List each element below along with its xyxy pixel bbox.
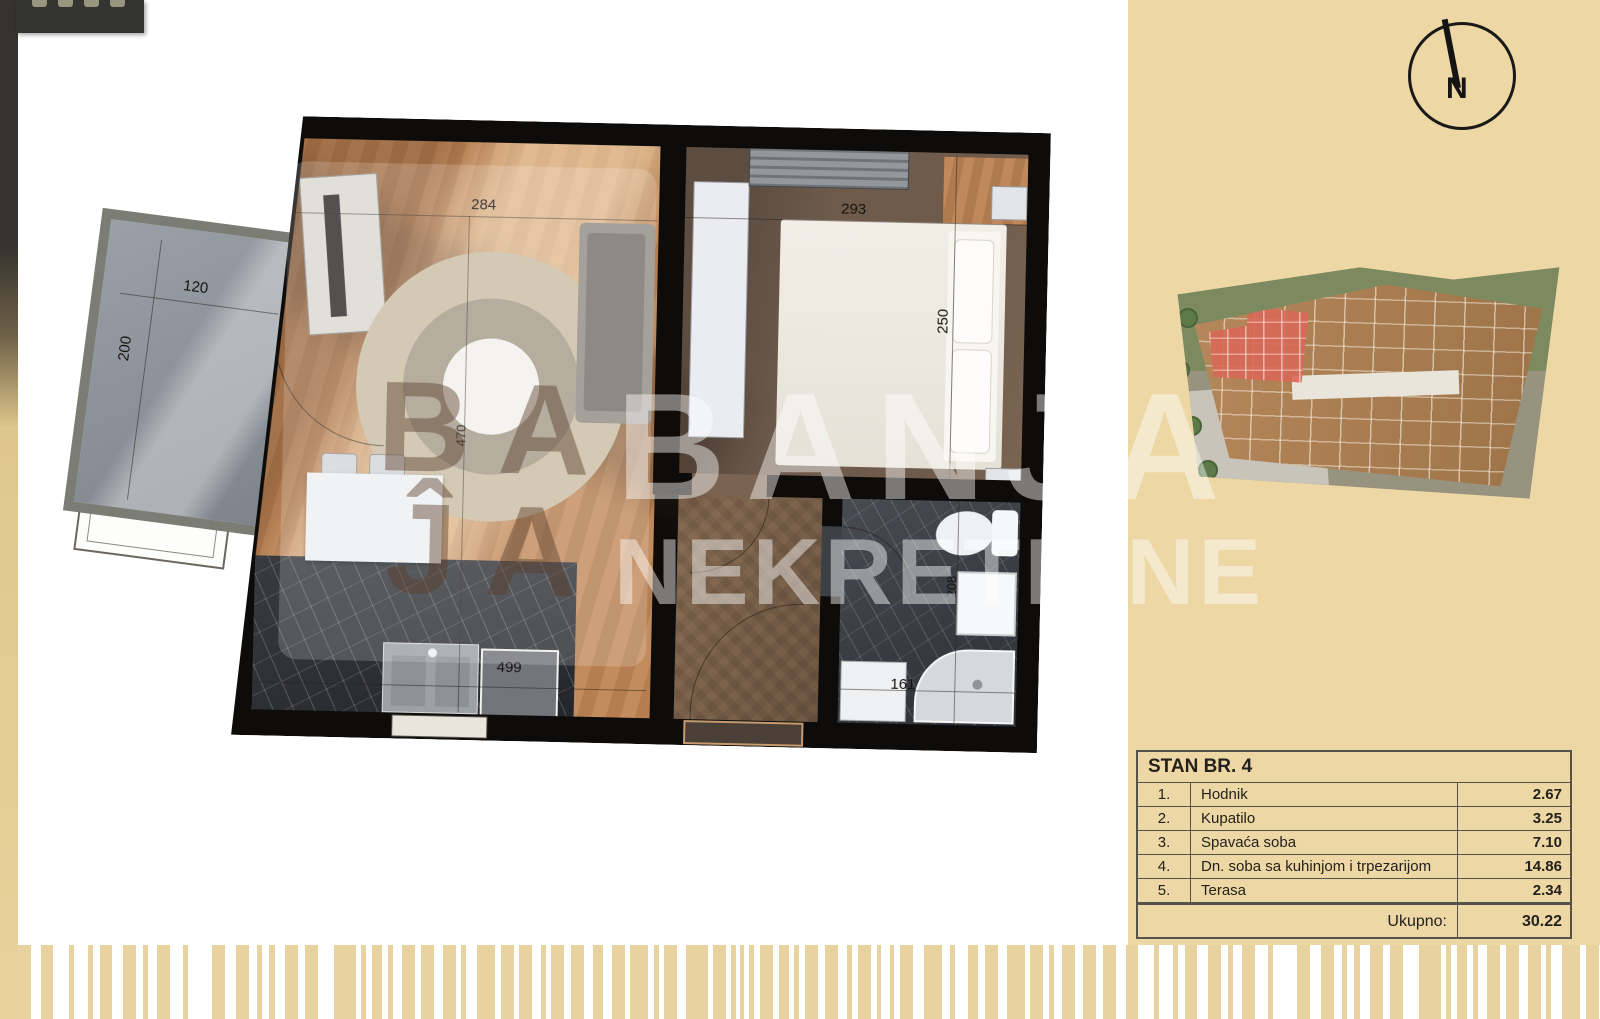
- bedroom-door-opening: [692, 473, 767, 497]
- sofa: [575, 223, 656, 425]
- barcode-bar: [1049, 945, 1054, 1019]
- tree-icon: [1198, 460, 1218, 480]
- barcode-bar: [269, 945, 275, 1019]
- kitchen-sink-unit: [382, 642, 480, 714]
- room-area: 2.67: [1457, 783, 1570, 806]
- total-label: Ukupno:: [1138, 905, 1457, 937]
- total-value: 30.22: [1457, 905, 1570, 937]
- tv-console: [299, 173, 387, 336]
- barcode-bar: [443, 945, 456, 1019]
- barcode-bar: [1185, 945, 1197, 1019]
- barcode-bar: [686, 945, 708, 1019]
- room-area: 7.10: [1457, 831, 1570, 854]
- row-number: 3.: [1138, 831, 1191, 854]
- barcode-bar: [760, 945, 773, 1019]
- entrance-door: [683, 720, 804, 747]
- building-corridor: [1292, 370, 1460, 400]
- barcode-bar: [361, 945, 366, 1019]
- barcode-bar: [305, 945, 318, 1019]
- barcode-bar: [1354, 945, 1360, 1019]
- dim-bath-width: 161: [890, 676, 915, 694]
- compass-north-label: N: [1446, 72, 1468, 106]
- barcode-bar: [877, 945, 881, 1019]
- barcode-bar: [1062, 945, 1075, 1019]
- barcode-bar: [825, 945, 838, 1019]
- barcode-bar: [477, 945, 495, 1019]
- barcode-bar: [1007, 945, 1025, 1019]
- barcode-bar: [69, 945, 74, 1019]
- room-area: 3.25: [1457, 807, 1570, 830]
- cabinet-door: [391, 655, 426, 706]
- tree-icon: [1170, 360, 1190, 380]
- pillow: [950, 349, 992, 454]
- barcode-bar: [900, 945, 913, 1019]
- barcode-bar: [805, 945, 818, 1019]
- edge-accent-strip: [0, 0, 18, 1019]
- tree-icon: [1182, 416, 1202, 436]
- barcode-bar: [334, 945, 356, 1019]
- cropped-letter: [110, 0, 125, 7]
- barcode-bar: [1419, 945, 1441, 1019]
- barcode-bar: [100, 945, 112, 1019]
- table-row: 4. Dn. soba sa kuhinjom i trpezarijom 14…: [1138, 855, 1570, 879]
- total-row: Ukupno: 30.22: [1136, 903, 1572, 939]
- dim-living-height: 470: [453, 424, 468, 446]
- barcode-bar: [924, 945, 942, 1019]
- dim-living-width: 284: [471, 196, 496, 214]
- barcode-bar: [88, 945, 93, 1019]
- barcode-bar: [1242, 945, 1255, 1019]
- cropped-letter: [32, 0, 47, 7]
- barcode-bar: [749, 945, 754, 1019]
- cropped-letter: [84, 0, 99, 7]
- barcode-bar: [551, 945, 564, 1019]
- barcode-bar: [1457, 945, 1467, 1019]
- cropped-logo-banner: [16, 0, 144, 33]
- barcode-bar: [1370, 945, 1383, 1019]
- barcode-bar: [1083, 945, 1096, 1019]
- table-row: 5. Terasa 2.34: [1138, 879, 1570, 902]
- barcode-bar: [402, 945, 415, 1019]
- dim-bath-height: 208: [944, 576, 959, 598]
- barcode-bar: [1446, 945, 1451, 1019]
- barcode-bar: [1562, 945, 1580, 1019]
- barcode-bar: [731, 945, 736, 1019]
- building-footprint: [1195, 285, 1543, 487]
- table-row: 3. Spavaća soba 7.10: [1138, 831, 1570, 855]
- barcode-bar: [1528, 945, 1541, 1019]
- barcode-bar: [612, 945, 625, 1019]
- barcode-bar: [1390, 945, 1403, 1019]
- barcode-bar: [1268, 945, 1273, 1019]
- barcode-bar: [571, 945, 584, 1019]
- barcode-bar: [1546, 945, 1551, 1019]
- window: [391, 714, 487, 738]
- barcode-bar: [1487, 945, 1500, 1019]
- barcode-bar: [1297, 945, 1310, 1019]
- barcode-bar: [1321, 945, 1334, 1019]
- barcode-bar: [858, 945, 871, 1019]
- barcode-bar: [664, 945, 677, 1019]
- building-locator-plan: [1148, 260, 1572, 506]
- barcode-bar: [1586, 945, 1599, 1019]
- dim-bedroom-width: 293: [841, 200, 866, 218]
- toilet-tank: [991, 510, 1018, 557]
- cabinet-door: [435, 656, 470, 707]
- barcode-bar: [1208, 945, 1221, 1019]
- floor-plan: 284 293 250 470 499 161 208 BA ĴA: [231, 115, 1051, 753]
- barcode-bar: [890, 945, 894, 1019]
- barcode-bar: [985, 945, 998, 1019]
- barcode-bar: [183, 945, 188, 1019]
- shower-drain-icon: [972, 680, 982, 690]
- decorative-barcode: [18, 945, 1600, 1019]
- barcode-bar: [630, 945, 648, 1019]
- barcode-bar: [212, 945, 225, 1019]
- room-name: Kupatilo: [1191, 807, 1457, 830]
- barcode-bar: [501, 945, 514, 1019]
- barcode-bar: [519, 945, 532, 1019]
- row-number: 5.: [1138, 879, 1191, 902]
- barcode-bar: [950, 945, 955, 1019]
- barcode-bar: [541, 945, 546, 1019]
- room-name: Dn. soba sa kuhinjom i trpezarijom: [1191, 855, 1457, 878]
- dim-kitchen-width: 499: [496, 659, 521, 677]
- room-name: Spavaća soba: [1191, 831, 1457, 854]
- wardrobe: [688, 181, 750, 438]
- room-area: 2.34: [1457, 879, 1570, 902]
- table-row: 1. Hodnik 2.67: [1138, 783, 1570, 807]
- barcode-bar: [372, 945, 382, 1019]
- row-number: 2.: [1138, 807, 1191, 830]
- dim-bedroom-height: 250: [934, 309, 952, 334]
- dimension-line: [127, 240, 162, 500]
- barcode-bar: [123, 945, 136, 1019]
- area-table: STAN BR. 4 1. Hodnik 2.67 2. Kupatilo 3.…: [1136, 750, 1572, 904]
- barcode-bar: [1506, 945, 1519, 1019]
- barcode-bar: [1030, 945, 1043, 1019]
- room-name: Terasa: [1191, 879, 1457, 902]
- barcode-bar: [654, 945, 659, 1019]
- side-panel: N STAN BR. 4 1. Hodnik 2.67 2. Kupatilo …: [1128, 0, 1600, 947]
- row-number: 1.: [1138, 783, 1191, 806]
- double-bed: [775, 219, 1007, 470]
- barcode-bar: [713, 945, 726, 1019]
- barcode-bar: [1126, 945, 1138, 1019]
- barcode-bar: [257, 945, 262, 1019]
- barcode-bar: [143, 945, 148, 1019]
- table-row: 2. Kupatilo 3.25: [1138, 807, 1570, 831]
- barcode-bar: [388, 945, 393, 1019]
- barcode-bar: [847, 945, 852, 1019]
- barcode-bar: [779, 945, 789, 1019]
- barcode-bar: [285, 945, 298, 1019]
- sofa-cushion: [584, 233, 646, 412]
- barcode-bar: [18, 945, 31, 1019]
- barcode-bar: [1103, 945, 1116, 1019]
- barcode-bar: [1473, 945, 1478, 1019]
- barcode-bar: [794, 945, 799, 1019]
- row-number: 4.: [1138, 855, 1191, 878]
- pillow: [952, 239, 994, 344]
- barcode-bar: [593, 945, 603, 1019]
- barcode-bar: [1173, 945, 1178, 1019]
- barcode-bar: [461, 945, 466, 1019]
- nightstand: [991, 186, 1028, 221]
- barcode-bar: [236, 945, 249, 1019]
- barcode-bar: [740, 945, 744, 1019]
- barcode-bar: [968, 945, 978, 1019]
- room-name: Hodnik: [1191, 783, 1457, 806]
- cropped-letter: [58, 0, 73, 7]
- barcode-bar: [41, 945, 53, 1019]
- site-plot: [1148, 260, 1572, 506]
- barcode-bar: [421, 945, 434, 1019]
- barcode-bar: [157, 945, 170, 1019]
- dim-terrace-height: 200: [115, 335, 135, 362]
- room-area: 14.86: [1457, 855, 1570, 878]
- barcode-bar: [1154, 945, 1159, 1019]
- dining-table: [305, 472, 443, 563]
- bathroom-sink: [956, 571, 1017, 636]
- barcode-bar: [1342, 945, 1347, 1019]
- bathroom-door-opening: [820, 526, 842, 596]
- barcode-bar: [1228, 945, 1233, 1019]
- apartment-title: STAN BR. 4: [1138, 752, 1570, 783]
- dim-terrace-width: 120: [182, 277, 209, 297]
